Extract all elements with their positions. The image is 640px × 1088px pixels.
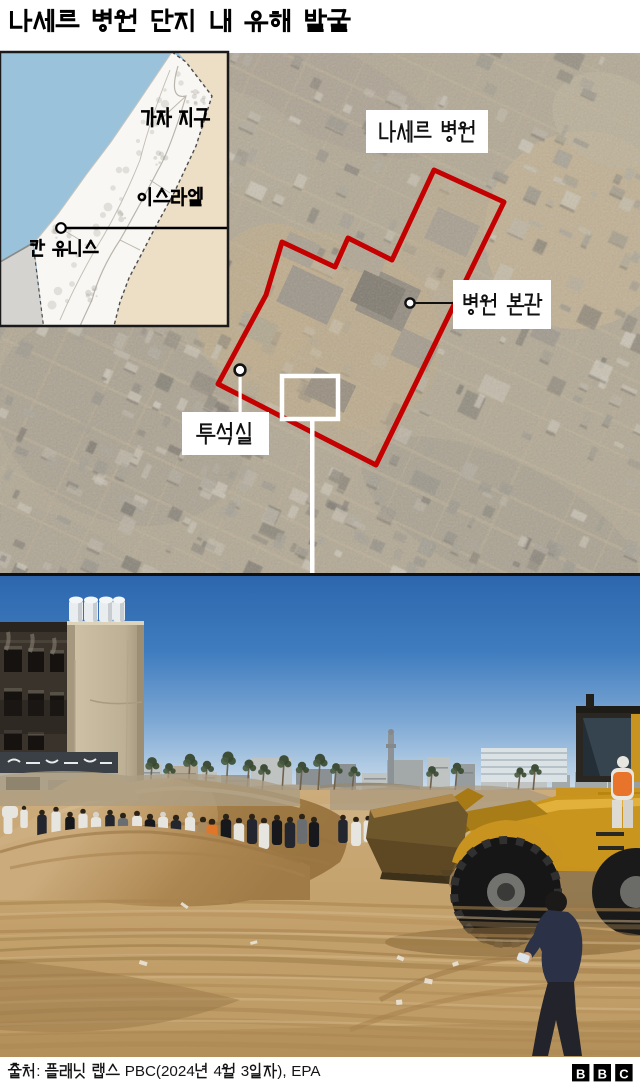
svg-text:),: ), — [277, 1063, 286, 1080]
svg-text:B: B — [598, 1066, 607, 1081]
svg-text:B: B — [576, 1066, 585, 1081]
svg-text::: : — [36, 1063, 40, 1080]
svg-text:PBC(2024: PBC(2024 — [125, 1063, 195, 1080]
svg-text:4: 4 — [214, 1063, 222, 1080]
svg-text:C: C — [619, 1066, 629, 1081]
svg-text:3: 3 — [241, 1063, 249, 1080]
svg-text:EPA: EPA — [291, 1063, 321, 1080]
